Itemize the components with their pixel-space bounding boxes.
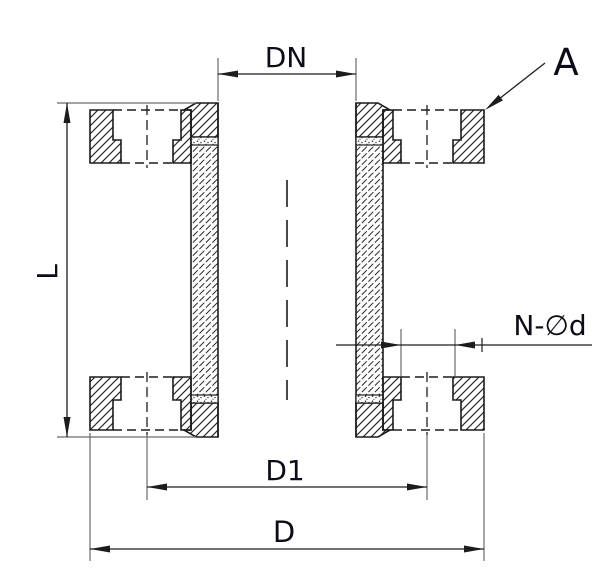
arrowhead (218, 71, 238, 78)
flange-block (90, 377, 121, 430)
gasket-lining-top-left (191, 137, 218, 145)
dimension-d: D (90, 433, 484, 561)
bottom-left-flange-section (90, 372, 191, 435)
top-right-flange-section (383, 105, 484, 168)
label-n-d: N-∅d (513, 309, 586, 342)
flange-block (173, 110, 191, 163)
flange-block (383, 377, 401, 430)
gasket-lining-bottom-right (356, 395, 383, 403)
gasket-lining-top-right (356, 137, 383, 145)
flange-cross-section-drawing: DN L A N-∅d D1 (0, 0, 613, 587)
arrowhead (381, 342, 401, 349)
pipe-wall-right (356, 145, 383, 395)
arrowhead (407, 484, 427, 491)
label-dn: DN (265, 41, 308, 74)
dimension-d1: D1 (147, 435, 427, 500)
arrowhead (64, 103, 71, 123)
flange-block (90, 110, 121, 163)
label-d1: D1 (265, 454, 304, 487)
arrowhead (336, 71, 356, 78)
flange-block (453, 377, 484, 430)
label-a: A (553, 41, 578, 84)
pipe-wall-left (191, 145, 218, 395)
flange-block (453, 110, 484, 163)
arrowhead (464, 546, 484, 553)
flange-block (383, 110, 401, 163)
flange-block (173, 377, 191, 430)
top-left-flange-section (90, 105, 191, 168)
arrowhead (64, 417, 71, 437)
label-l: L (31, 264, 64, 280)
arrowhead (90, 546, 110, 553)
arrowhead (147, 484, 167, 491)
detail-callout-a: A (485, 41, 579, 110)
dimension-dn: DN (218, 41, 356, 101)
flange-drawing-canvas: DN L A N-∅d D1 (0, 0, 613, 587)
bottom-right-flange-section (383, 372, 484, 435)
gasket-lining-bottom-left (191, 395, 218, 403)
arrowhead (455, 342, 475, 349)
arrowhead (485, 95, 503, 110)
label-d: D (273, 515, 295, 549)
